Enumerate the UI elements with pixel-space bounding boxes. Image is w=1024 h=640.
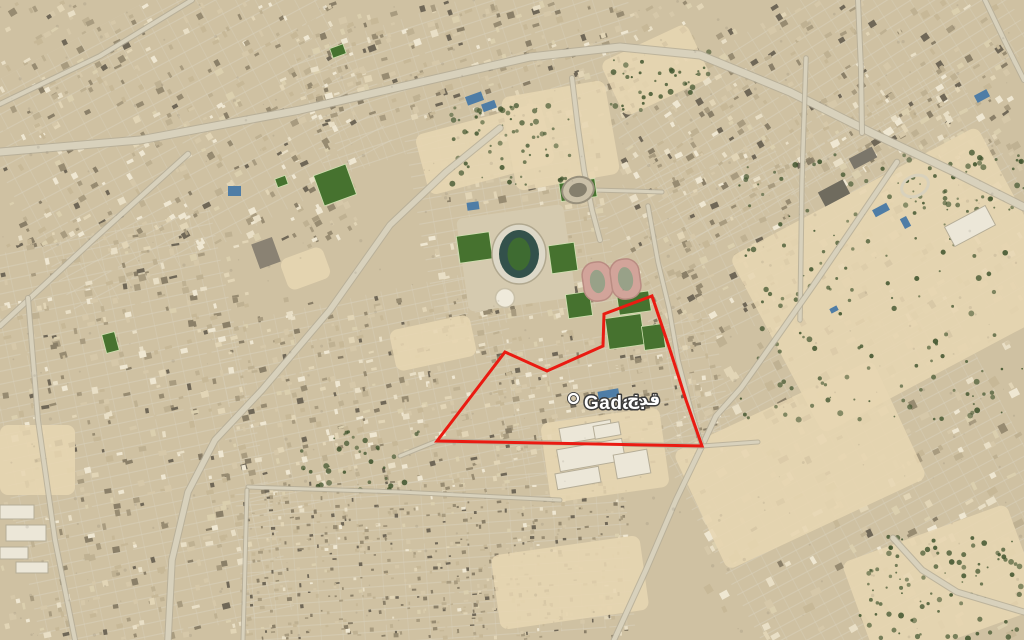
map-canvas[interactable]: Gadah قدح bbox=[0, 0, 1024, 640]
satellite-imagery-layer bbox=[0, 0, 1024, 640]
satellite-map[interactable]: Gadah قدح bbox=[0, 0, 1024, 640]
place-name-arabic: قدح bbox=[627, 390, 660, 410]
